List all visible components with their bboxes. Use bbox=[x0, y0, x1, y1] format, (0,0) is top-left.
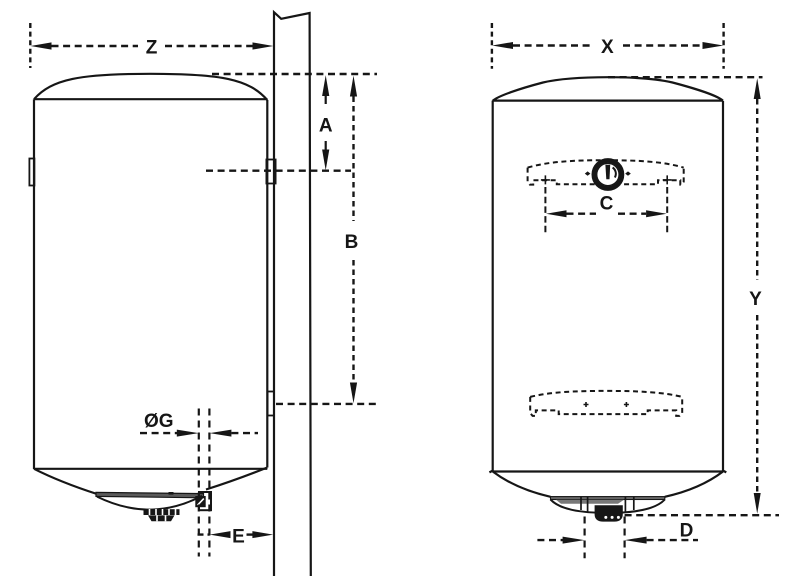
svg-text:X: X bbox=[601, 37, 614, 58]
svg-text:ØG: ØG bbox=[144, 411, 174, 432]
svg-text:Z: Z bbox=[146, 38, 158, 59]
svg-text:E: E bbox=[232, 527, 245, 548]
svg-text:B: B bbox=[345, 232, 359, 253]
svg-text:D: D bbox=[680, 521, 694, 542]
svg-text:A: A bbox=[319, 116, 333, 137]
svg-text:C: C bbox=[600, 194, 614, 215]
svg-text:Y: Y bbox=[749, 289, 762, 310]
